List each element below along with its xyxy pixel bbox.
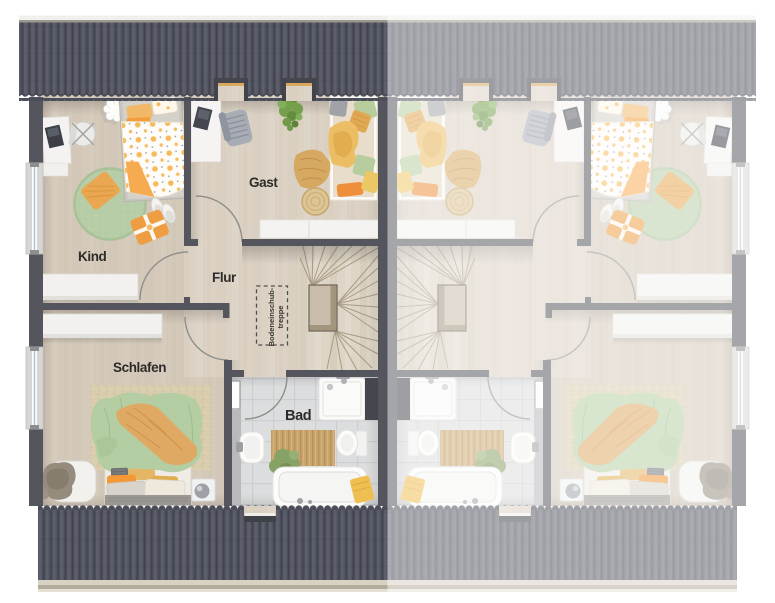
svg-text:treppe: treppe xyxy=(276,306,285,329)
svg-text:Bodeneinschub-: Bodeneinschub- xyxy=(267,287,276,346)
svg-text:Flur: Flur xyxy=(212,270,237,285)
svg-text:Bad: Bad xyxy=(285,408,311,424)
svg-text:Kind: Kind xyxy=(78,249,107,264)
svg-text:Schlafen: Schlafen xyxy=(113,360,166,375)
svg-text:Gast: Gast xyxy=(249,175,278,190)
